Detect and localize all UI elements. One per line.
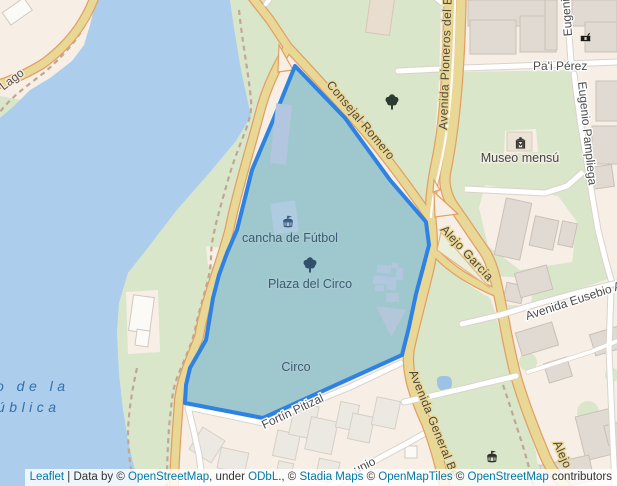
svg-text:Plaza del Circo: Plaza del Circo [268,277,352,291]
svg-text:o de la: o de la [0,378,70,394]
svg-text:ública: ública [0,399,61,415]
svg-text:Pa'i Pérez: Pa'i Pérez [533,59,587,73]
svg-text:cancha de Fútbol: cancha de Fútbol [242,231,338,245]
svg-text:Museo mensú: Museo mensú [481,151,560,165]
svg-text:Circo: Circo [281,360,310,374]
svg-text:Eugenio: Eugenio [558,0,575,37]
